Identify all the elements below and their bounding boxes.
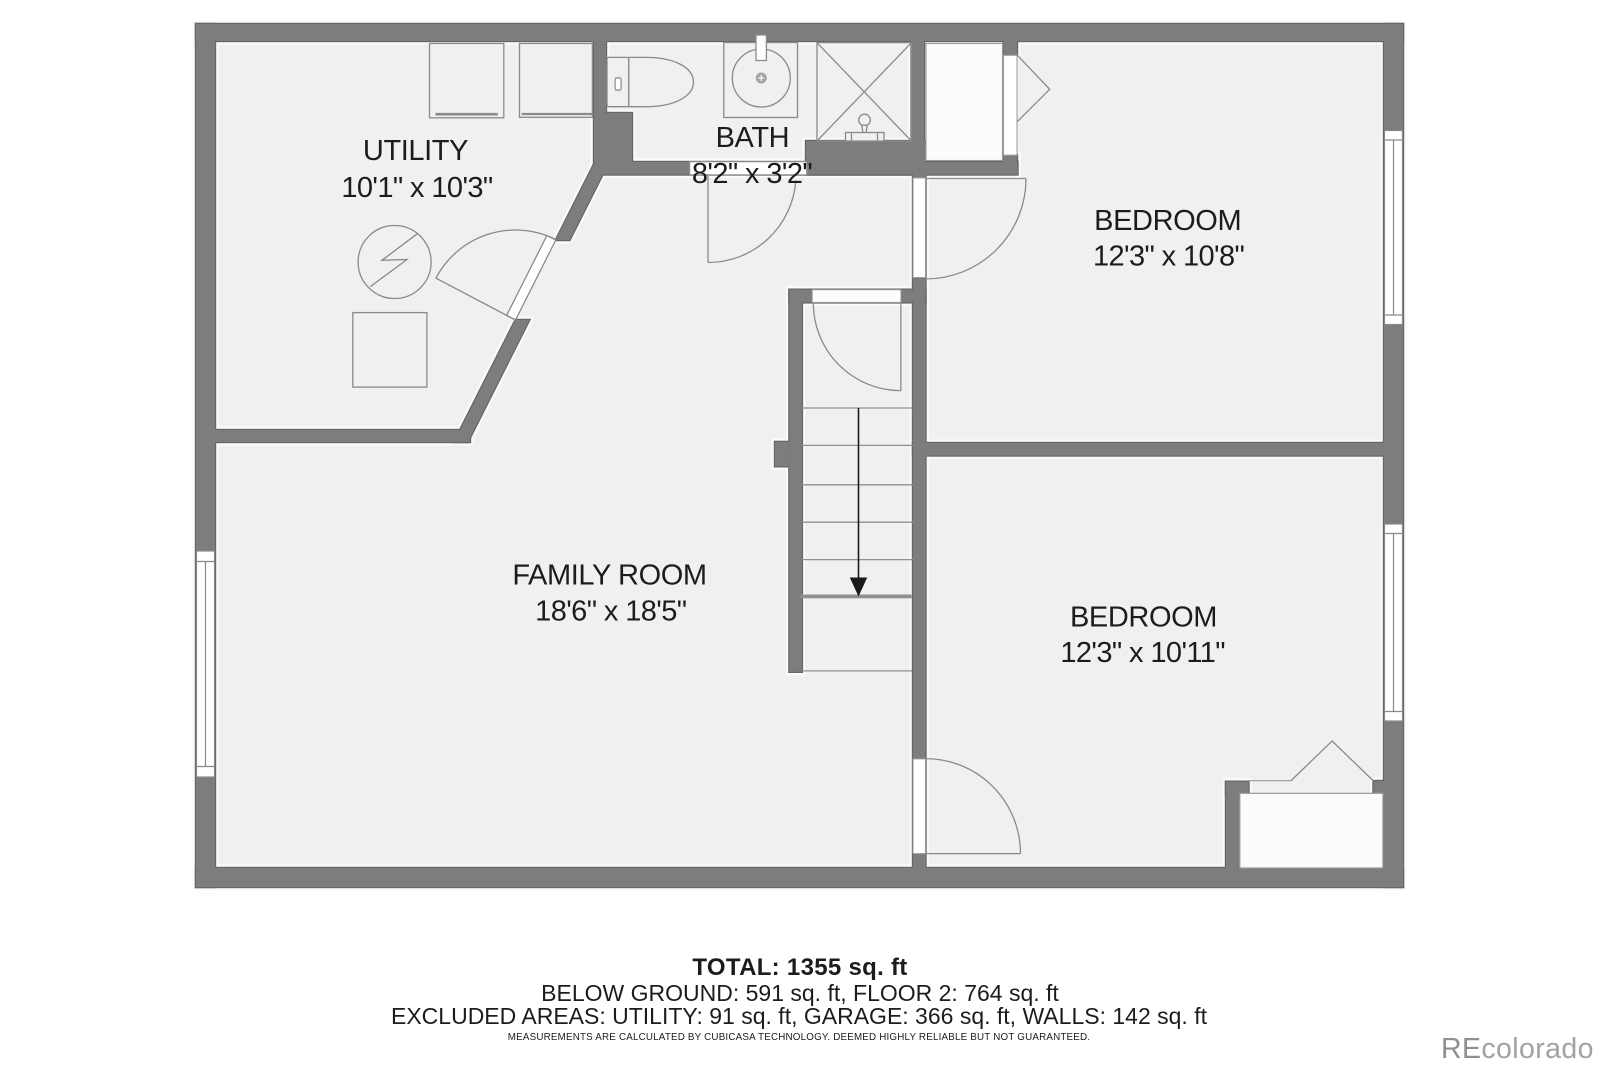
svg-text:18'6" x 18'5": 18'6" x 18'5" [535,596,687,628]
svg-text:10'1" x 10'3": 10'1" x 10'3" [341,172,493,204]
svg-text:REcolorado: REcolorado [1441,1033,1594,1065]
svg-text:12'3" x 10'8": 12'3" x 10'8" [1093,241,1245,273]
svg-text:TOTAL: 1355 sq. ft: TOTAL: 1355 sq. ft [692,954,907,981]
svg-text:UTILITY: UTILITY [363,135,468,167]
svg-text:EXCLUDED AREAS: UTILITY: 91 sq: EXCLUDED AREAS: UTILITY: 91 sq. ft, GARA… [391,1003,1208,1029]
svg-text:MEASUREMENTS ARE CALCULATED BY: MEASUREMENTS ARE CALCULATED BY CUBICASA … [508,1032,1090,1043]
svg-text:BEDROOM: BEDROOM [1070,601,1217,633]
svg-text:8'2" x 3'2": 8'2" x 3'2" [692,158,812,190]
svg-text:FAMILY ROOM: FAMILY ROOM [512,560,706,592]
svg-text:12'3" x 10'11": 12'3" x 10'11" [1060,637,1225,669]
svg-text:BEDROOM: BEDROOM [1094,205,1241,237]
svg-text:BATH: BATH [716,122,790,154]
